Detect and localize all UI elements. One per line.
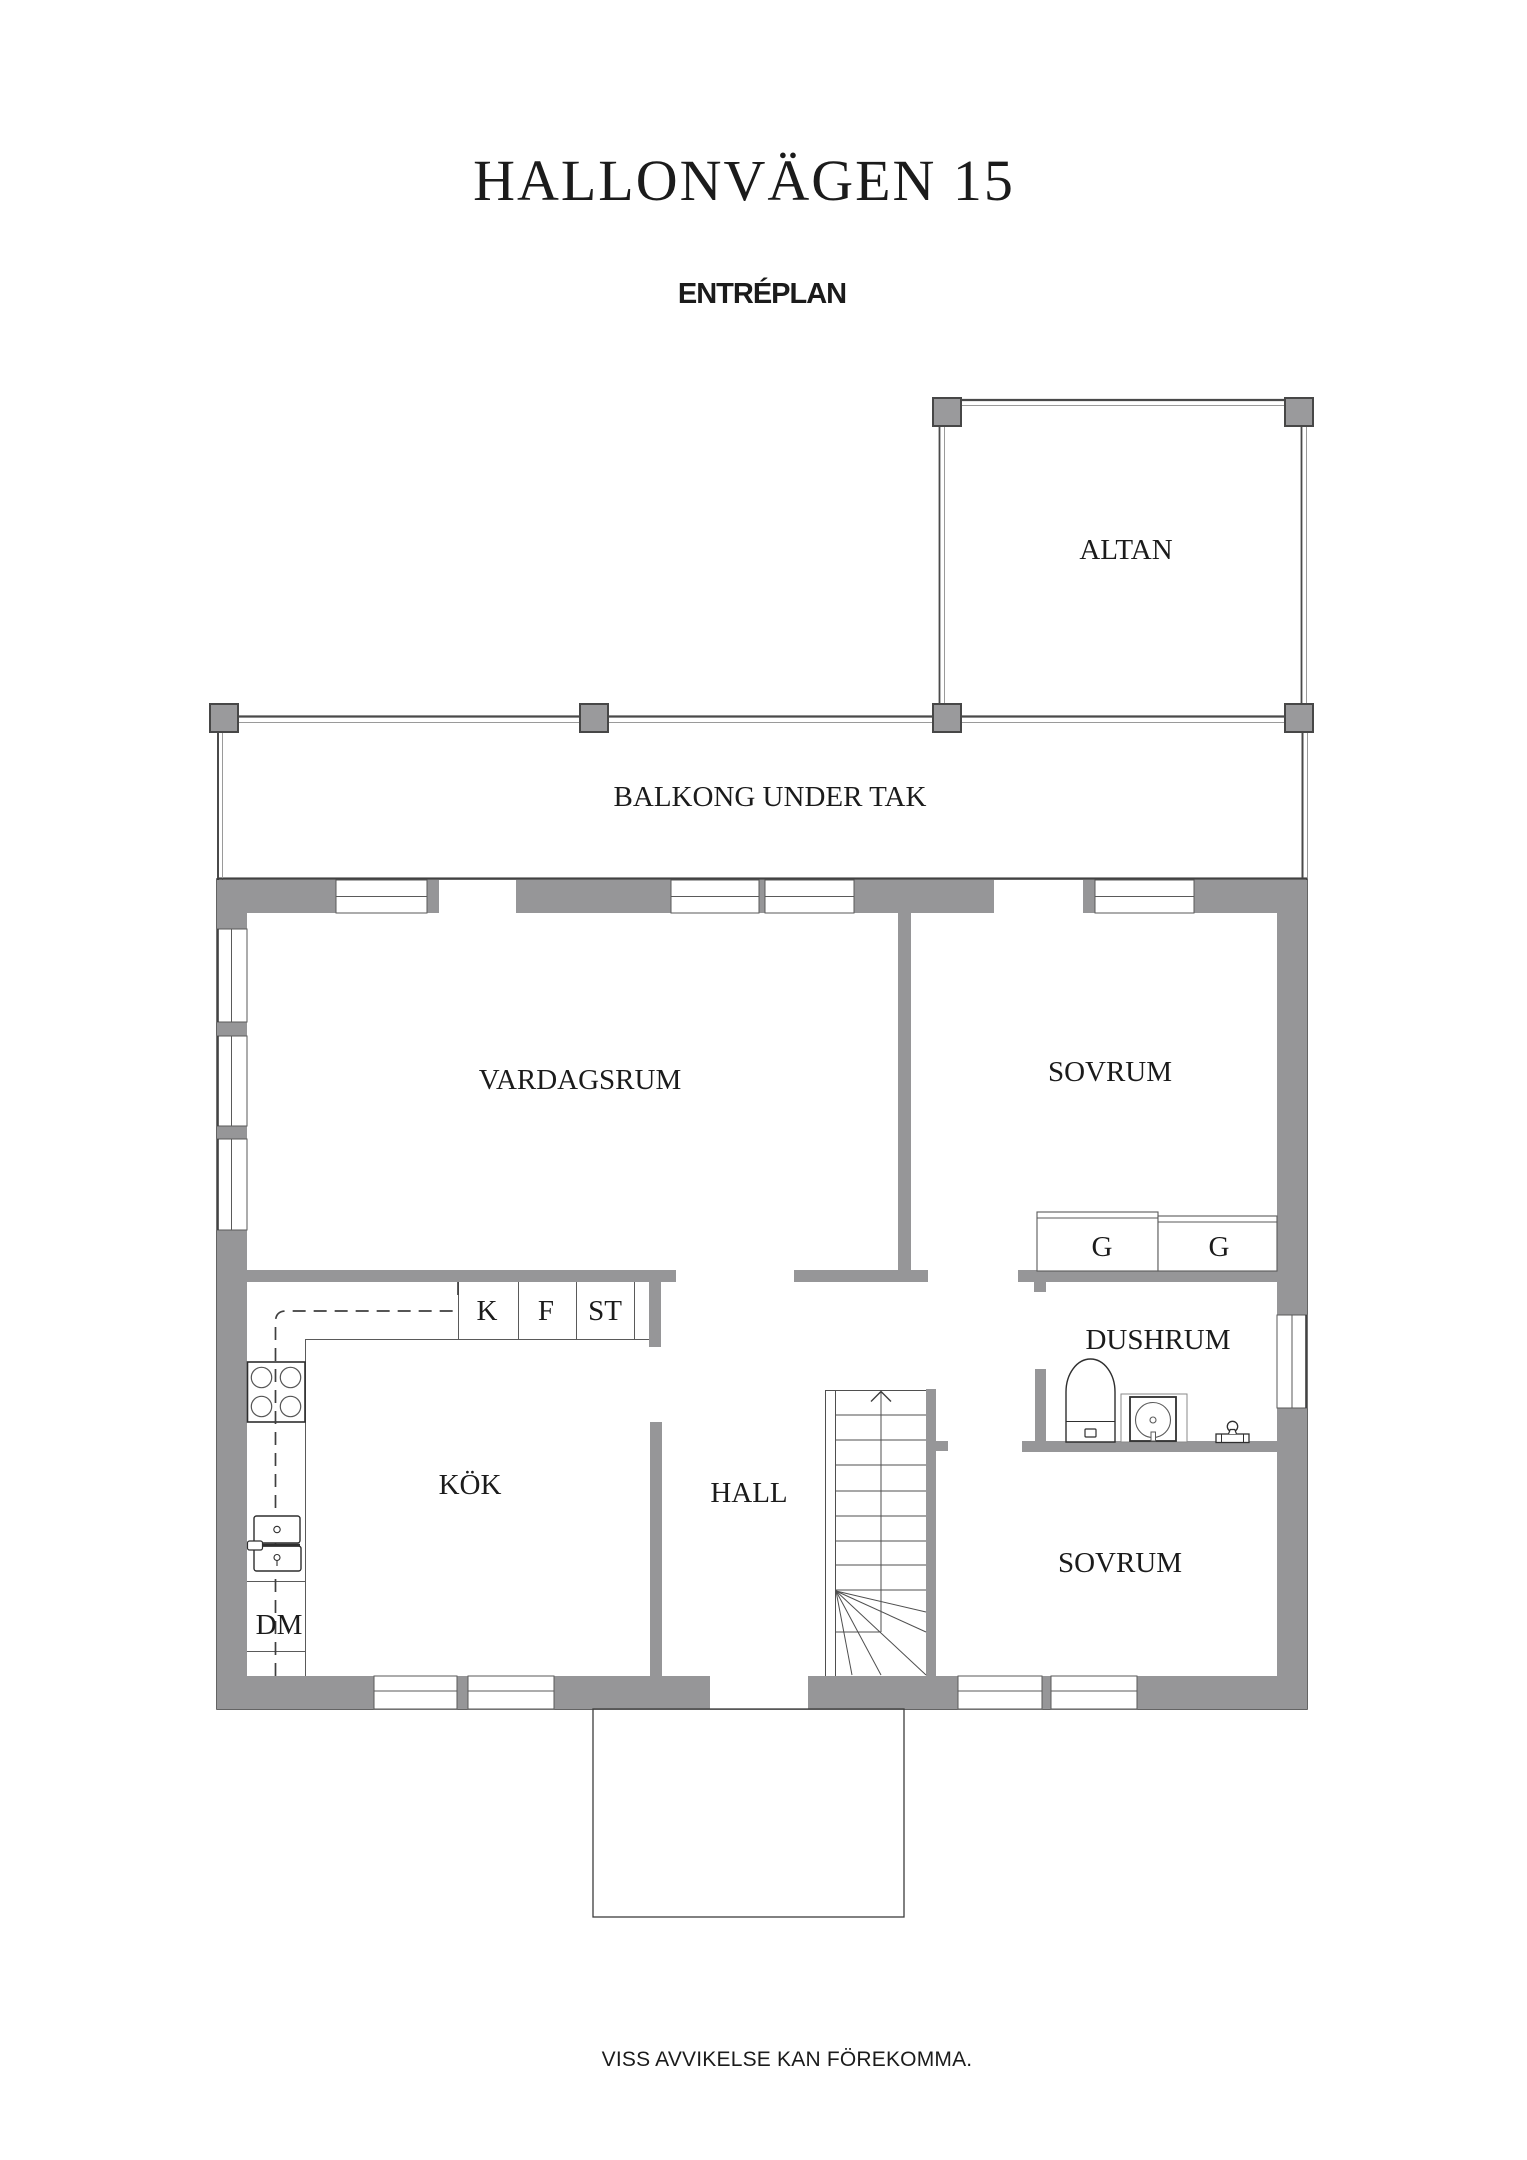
svg-text:K: K <box>477 1295 498 1327</box>
svg-text:G: G <box>1209 1231 1230 1263</box>
svg-text:ALTAN: ALTAN <box>1079 534 1172 566</box>
svg-text:HALL: HALL <box>710 1477 787 1509</box>
svg-text:VARDAGSRUM: VARDAGSRUM <box>479 1064 682 1096</box>
svg-text:BALKONG UNDER TAK: BALKONG UNDER TAK <box>614 781 927 813</box>
svg-text:F: F <box>538 1295 554 1327</box>
svg-text:ENTRÉPLAN: ENTRÉPLAN <box>678 276 846 310</box>
svg-text:DM: DM <box>256 1609 303 1641</box>
svg-text:HALLONVÄGEN 15: HALLONVÄGEN 15 <box>473 148 1015 213</box>
svg-text:ST: ST <box>588 1295 622 1327</box>
svg-text:G: G <box>1092 1231 1113 1263</box>
svg-text:DUSHRUM: DUSHRUM <box>1085 1324 1230 1356</box>
svg-text:KÖK: KÖK <box>439 1469 502 1501</box>
svg-text:VISS AVVIKELSE KAN FÖREKOMMA.: VISS AVVIKELSE KAN FÖREKOMMA. <box>602 2048 973 2071</box>
svg-text:SOVRUM: SOVRUM <box>1048 1056 1172 1088</box>
svg-text:SOVRUM: SOVRUM <box>1058 1547 1182 1579</box>
